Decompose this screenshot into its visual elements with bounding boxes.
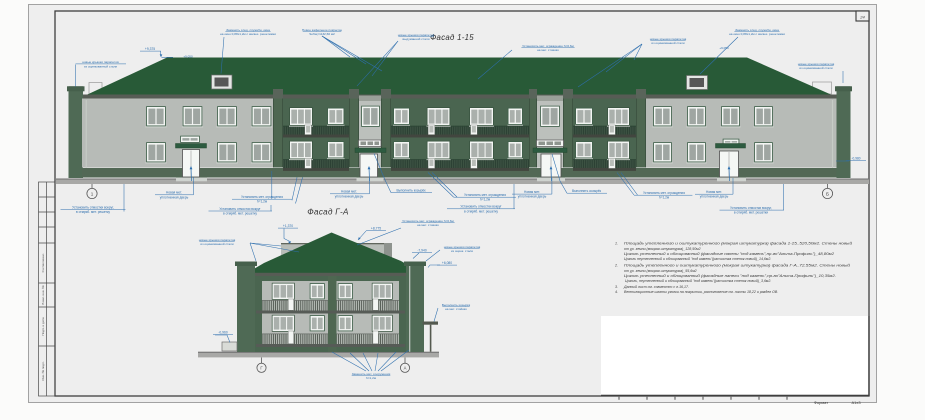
svg-text:3.: 3. — [615, 285, 618, 289]
svg-text:на окно 0,88х1,2м с жалюз. реш: на окно 0,88х1,2м с жалюз. решетками — [220, 32, 276, 36]
svg-text:Данный лист см. совместно с л.: Данный лист см. совместно с л.16,17. — [623, 285, 689, 289]
svg-text:на мет. стояках: на мет. стояках — [537, 48, 559, 52]
svg-text:2.: 2. — [614, 264, 618, 268]
svg-text:h=1,2м: h=1,2м — [366, 376, 376, 380]
svg-text:+9,050: +9,050 — [183, 55, 193, 59]
svg-text:24: 24 — [859, 15, 865, 20]
svg-text:-7,940: -7,940 — [417, 249, 427, 253]
svg-text:1.: 1. — [615, 242, 618, 246]
svg-text:+6,080: +6,080 — [442, 261, 452, 265]
svg-text:в отмряб. мет. решетку: в отмряб. мет. решетку — [76, 210, 110, 214]
svg-text:+1,370: +1,370 — [283, 224, 293, 228]
svg-text:-0,980: -0,980 — [851, 157, 860, 161]
svg-text:Площадь утепленного и оштукату: Площадь утепленного и оштукатуренного (м… — [624, 264, 850, 268]
svg-text:А: А — [404, 366, 407, 371]
svg-text:Формат: Формат — [814, 400, 828, 405]
svg-text:из оцинкованной стали: из оцинкованной стали — [799, 66, 833, 70]
svg-text:уплотненная дверь: уплотненная дверь — [518, 195, 547, 199]
svg-text:Установить мет. ограждения: Установить мет. ограждения — [464, 193, 506, 197]
svg-text:Новая мет.: Новая мет. — [706, 190, 722, 194]
svg-text:Инв. № подл.: Инв. № подл. — [41, 361, 45, 380]
svg-text:в отмряб. мет. решетку: в отмряб. мет. решетку — [464, 209, 498, 213]
svg-text:1: 1 — [91, 191, 94, 196]
svg-text:Цоколь неутепленный и облицова: Цоколь неутепленный и облицованный "под … — [624, 257, 771, 261]
svg-text:-0,960: -0,960 — [218, 331, 228, 335]
svg-text:+8,775: +8,775 — [371, 227, 381, 231]
svg-text:Фасад Г-А: Фасад Г-А — [307, 208, 348, 217]
svg-text:+9,375: +9,375 — [145, 47, 155, 51]
svg-text:Б: Б — [826, 191, 829, 196]
svg-text:Установить мет. ограждения: Установить мет. ограждения — [643, 191, 685, 195]
svg-text:от ур. земли (мокрая штукатурк: от ур. земли (мокрая штукатурка)_55,6м2 — [624, 269, 697, 273]
svg-text:в отмряб. мет. решетки: в отмряб. мет. решетки — [734, 211, 768, 215]
svg-text:из оцинк. стали: из оцинк. стали — [451, 249, 473, 253]
svg-text:на окно 0,88х1,2м с жалюз. реш: на окно 0,88х1,2м с жалюз. решетками — [729, 32, 785, 36]
svg-text:h=1,2м: h=1,2м — [659, 196, 669, 200]
svg-text:Установить отмостки вокруг: Установить отмостки вокруг — [219, 207, 261, 211]
svg-text:уплотненная дверь: уплотненная дверь — [335, 194, 364, 198]
svg-text:от ур. земли (мокрая штукатурк: от ур. земли (мокрая штукатурка)_128,50м… — [624, 247, 701, 251]
svg-text:Цоколь утепленный и облицованн: Цоколь утепленный и облицованный (фасадн… — [624, 252, 834, 256]
svg-text:Взам. инв. №: Взам. инв. № — [41, 285, 45, 305]
svg-text:новые крышки парапетов: новые крышки парапетов — [82, 60, 119, 64]
svg-text:Согласовано: Согласовано — [41, 253, 45, 272]
svg-text:Фасад 1-15: Фасад 1-15 — [430, 33, 474, 42]
svg-text:h=1,2м: h=1,2м — [480, 198, 490, 202]
svg-text:Установить мет. ограждения: Установить мет. ограждения — [241, 195, 283, 199]
svg-text:+9,050: +9,050 — [719, 46, 729, 50]
svg-text:уплотненная дверь: уплотненная дверь — [160, 195, 189, 199]
svg-text:Цоколь утепленный и облицованн: Цоколь утепленный и облицованный (фасадн… — [624, 274, 836, 278]
svg-text:Подп. и дата: Подп. и дата — [41, 317, 45, 336]
svg-text:Установить отмостки вокруг,: Установить отмостки вокруг, — [72, 206, 114, 210]
svg-text:на мет. стояках: на мет. стояках — [417, 223, 439, 227]
svg-text:h=1,2м: h=1,2м — [257, 200, 267, 204]
svg-text:Установить отмостки вокруг: Установить отмостки вокруг — [460, 205, 502, 209]
svg-text:Выполнить козырёк: Выполнить козырёк — [396, 189, 426, 193]
svg-text:Площадь утепленного и оштукату: Площадь утепленного и оштукатуренного (м… — [624, 242, 852, 246]
svg-text:из оцинкованной стали: из оцинкованной стали — [651, 41, 685, 45]
svg-text:уплотненная дверь: уплотненная дверь — [700, 195, 729, 199]
svg-text:Новая мет.: Новая мет. — [166, 191, 182, 195]
svg-text:Цоколь, неутепленный и облицов: Цоколь, неутепленный и облицованный "под… — [625, 279, 771, 283]
svg-text:Вентиляционные шахты уголки на: Вентиляционные шахты уголки на покрытии,… — [624, 290, 778, 294]
svg-text:Sобщ=1132,60 м2: Sобщ=1132,60 м2 — [309, 32, 335, 36]
svg-text:Новая мет.: Новая мет. — [341, 190, 357, 194]
svg-text:Выполнить козырёк: Выполнить козырёк — [572, 189, 602, 193]
svg-text:из оцинкованной стали: из оцинкованной стали — [200, 242, 234, 246]
svg-text:в отмряб. мет. решетку: в отмряб. мет. решетку — [223, 212, 257, 216]
svg-text:4.: 4. — [615, 290, 618, 294]
svg-text:Новая мет.: Новая мет. — [524, 190, 540, 194]
svg-text:А1х3: А1х3 — [851, 400, 861, 405]
svg-text:на мет. стойках: на мет. стойках — [445, 307, 467, 311]
svg-text:выдуманной стали: выдуманной стали — [403, 37, 430, 41]
svg-text:Установить отмостки вокруг,: Установить отмостки вокруг, — [730, 206, 772, 210]
svg-text:из оцинкованной стали: из оцинкованной стали — [84, 64, 118, 68]
